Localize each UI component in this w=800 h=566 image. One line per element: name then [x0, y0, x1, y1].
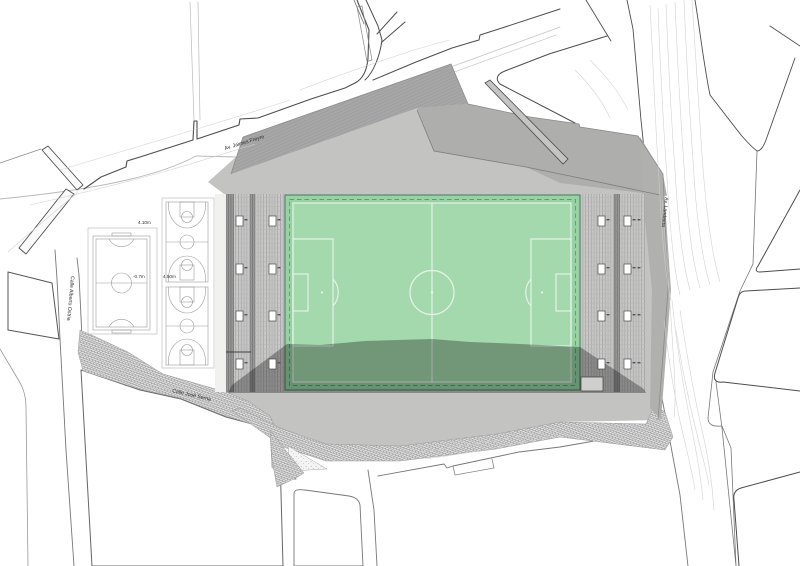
svg-text:4.50m: 4.50m [163, 274, 176, 279]
svg-text:-0.7m: -0.7m [133, 274, 145, 279]
svg-text:4.10m: 4.10m [138, 220, 151, 225]
